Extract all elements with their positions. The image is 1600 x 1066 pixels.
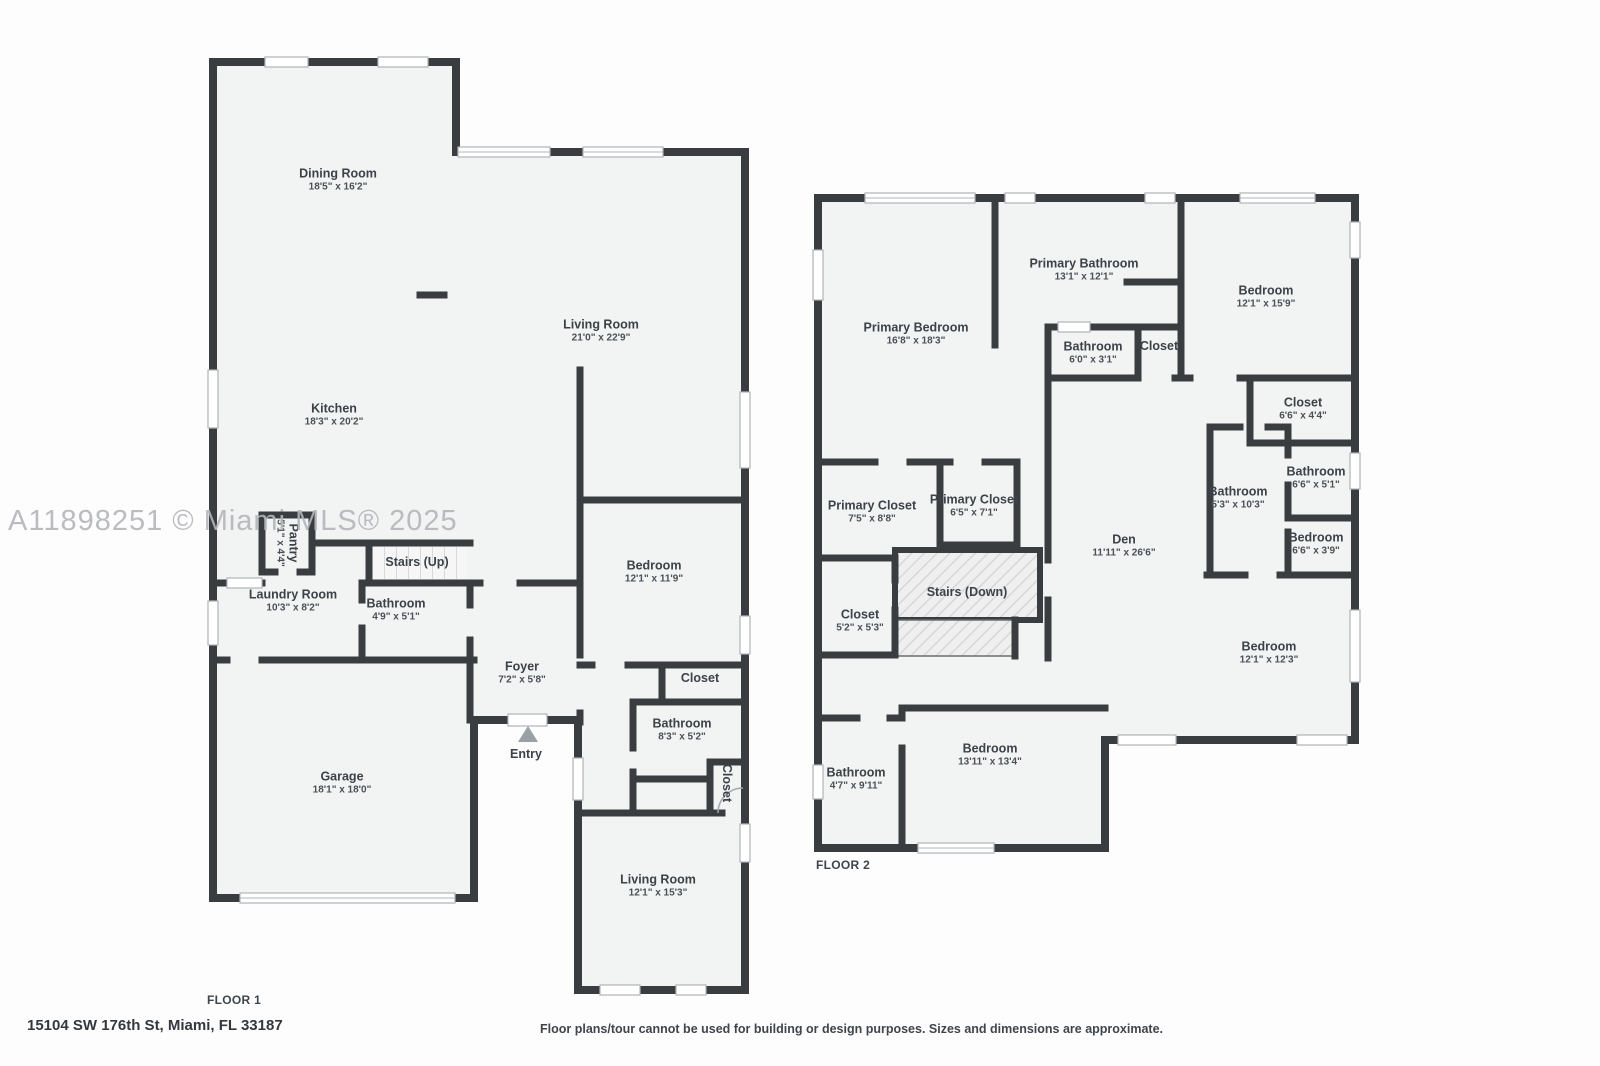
room-label-closet-52: Closet 5'2" x 5'3" bbox=[836, 608, 884, 635]
room-label-bedroom-f1: Bedroom 12'1" x 11'9" bbox=[625, 559, 683, 586]
room-label-living-room-2: Living Room 12'1" x 15'3" bbox=[620, 873, 696, 900]
room-label-stairs-up: Stairs (Up) bbox=[385, 555, 448, 569]
floor2-title: FLOOR 2 bbox=[816, 858, 870, 872]
mls-watermark: A11898251 © Miami MLS® 2025 bbox=[8, 505, 458, 538]
room-label-closet-f1a: Closet bbox=[681, 671, 719, 685]
room-label-bedroom-1212: Bedroom 12'1" x 12'3" bbox=[1240, 640, 1299, 667]
room-label-bathroom-47: Bathroom 4'7" x 9'11" bbox=[826, 766, 885, 793]
room-label-dining-room: Dining Room 18'5" x 16'2" bbox=[299, 167, 377, 194]
room-label-stairs-down: Stairs (Down) bbox=[927, 585, 1008, 599]
room-label-primary-bedroom: Primary Bedroom 16'8" x 18'3" bbox=[864, 321, 969, 348]
entry-label: Entry bbox=[510, 747, 542, 761]
room-label-bedroom-66: Bedroom 6'6" x 3'9" bbox=[1289, 531, 1344, 558]
room-label-foyer: Foyer 7'2" x 5'8" bbox=[498, 660, 546, 687]
room-label-garage: Garage 18'1" x 18'0" bbox=[313, 770, 372, 797]
room-label-primary-closet-1: Primary Closet 7'5" x 8'8" bbox=[828, 499, 916, 526]
room-label-living-room: Living Room 21'0" x 22'9" bbox=[563, 318, 639, 345]
floor1-title: FLOOR 1 bbox=[207, 993, 261, 1007]
room-label-bathroom-2: Bathroom 8'3" x 5'2" bbox=[652, 717, 711, 744]
room-label-bathroom-small: Bathroom 6'0" x 3'1" bbox=[1063, 340, 1122, 367]
room-label-bedroom-1311: Bedroom 13'11" x 13'4" bbox=[958, 742, 1022, 769]
room-label-primary-bathroom: Primary Bathroom 13'1" x 12'1" bbox=[1029, 257, 1138, 284]
room-label-bathroom-1: Bathroom 4'9" x 5'1" bbox=[366, 597, 425, 624]
entry-arrow-icon bbox=[518, 726, 538, 742]
room-label-closet-f2a: Closet bbox=[1140, 339, 1178, 353]
room-label-bathroom-66: Bathroom 6'6" x 5'1" bbox=[1286, 465, 1345, 492]
disclaimer-text: Floor plans/tour cannot be used for buil… bbox=[540, 1022, 1163, 1036]
room-label-den: Den 11'11" x 26'6" bbox=[1092, 533, 1155, 560]
room-label-bathroom-53: Bathroom 5'3" x 10'3" bbox=[1208, 485, 1267, 512]
room-label-kitchen: Kitchen 18'3" x 20'2" bbox=[305, 402, 364, 429]
floor2-stairs-down-lower bbox=[895, 620, 1015, 656]
room-label-laundry-room: Laundry Room 10'3" x 8'2" bbox=[249, 588, 337, 615]
property-address: 15104 SW 176th St, Miami, FL 33187 bbox=[27, 1017, 283, 1034]
room-label-bedroom-159: Bedroom 12'1" x 15'9" bbox=[1237, 284, 1296, 311]
room-label-primary-closet-2: Primary Closet 6'5" x 7'1" bbox=[930, 493, 1018, 520]
room-label-closet-f1b: Closet bbox=[720, 764, 734, 802]
room-label-closet-66: Closet 6'6" x 4'4" bbox=[1279, 396, 1327, 423]
